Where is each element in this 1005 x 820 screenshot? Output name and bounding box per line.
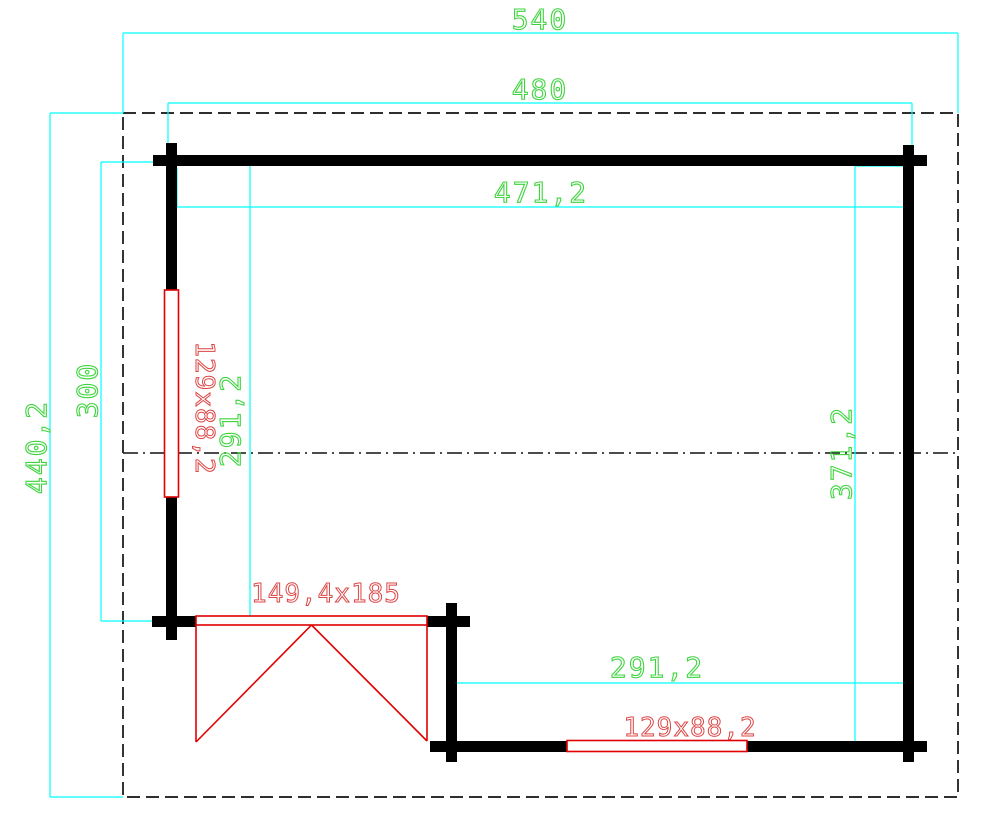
wall-top <box>153 155 927 166</box>
wall-right <box>903 145 914 762</box>
dim-text-440-2: 440,2 <box>20 400 53 494</box>
wall-stub-door-left <box>152 616 196 627</box>
door-leaf-right-swing <box>312 625 428 741</box>
dim-text-471-2: 471,2 <box>494 176 588 209</box>
wall-door-side-vertical <box>446 603 457 762</box>
dim-text-480: 480 <box>512 73 569 106</box>
double-door <box>196 616 427 742</box>
floor-plan-drawing: 540 480 471,2 440,2 300 291,2 371,2 291,… <box>0 0 1005 820</box>
dim-text-291-2-bottom: 291,2 <box>610 651 704 684</box>
door-size-label: 149,4x185 <box>251 579 401 609</box>
window-left <box>165 290 179 497</box>
dim-text-540: 540 <box>512 3 569 36</box>
dimension-lines <box>50 33 958 797</box>
dim-text-371-2: 371,2 <box>825 406 858 500</box>
door-header <box>196 616 427 625</box>
window-bottom-size-label: 129x88,2 <box>623 713 756 743</box>
window-left-size-label: 129x88,2 <box>189 341 219 474</box>
floor-plan-canvas: 540 480 471,2 440,2 300 291,2 371,2 291,… <box>0 0 1005 820</box>
dim-text-300: 300 <box>71 362 104 419</box>
door-leaf-left-swing <box>196 625 312 742</box>
